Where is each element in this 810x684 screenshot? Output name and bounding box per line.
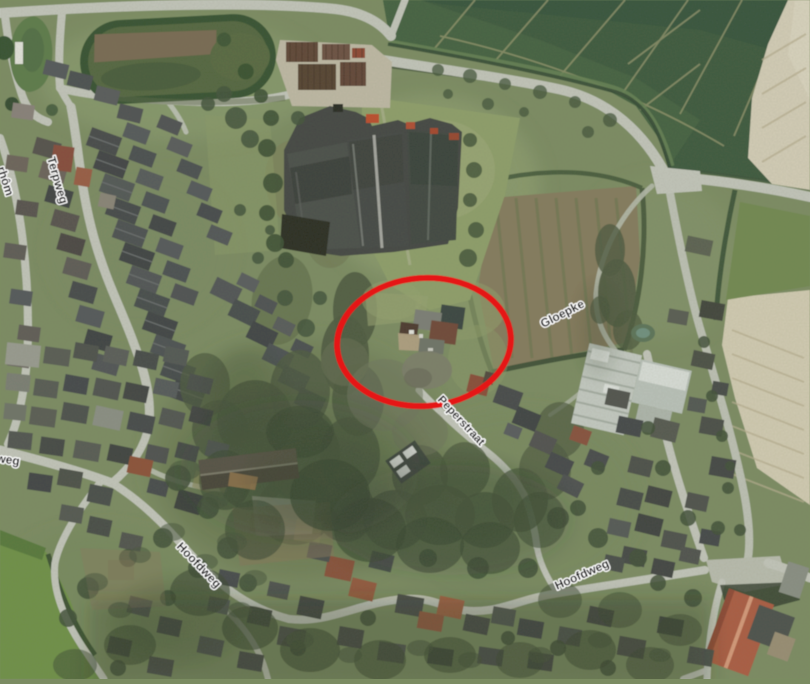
svg-text:weg: weg [0, 451, 21, 468]
